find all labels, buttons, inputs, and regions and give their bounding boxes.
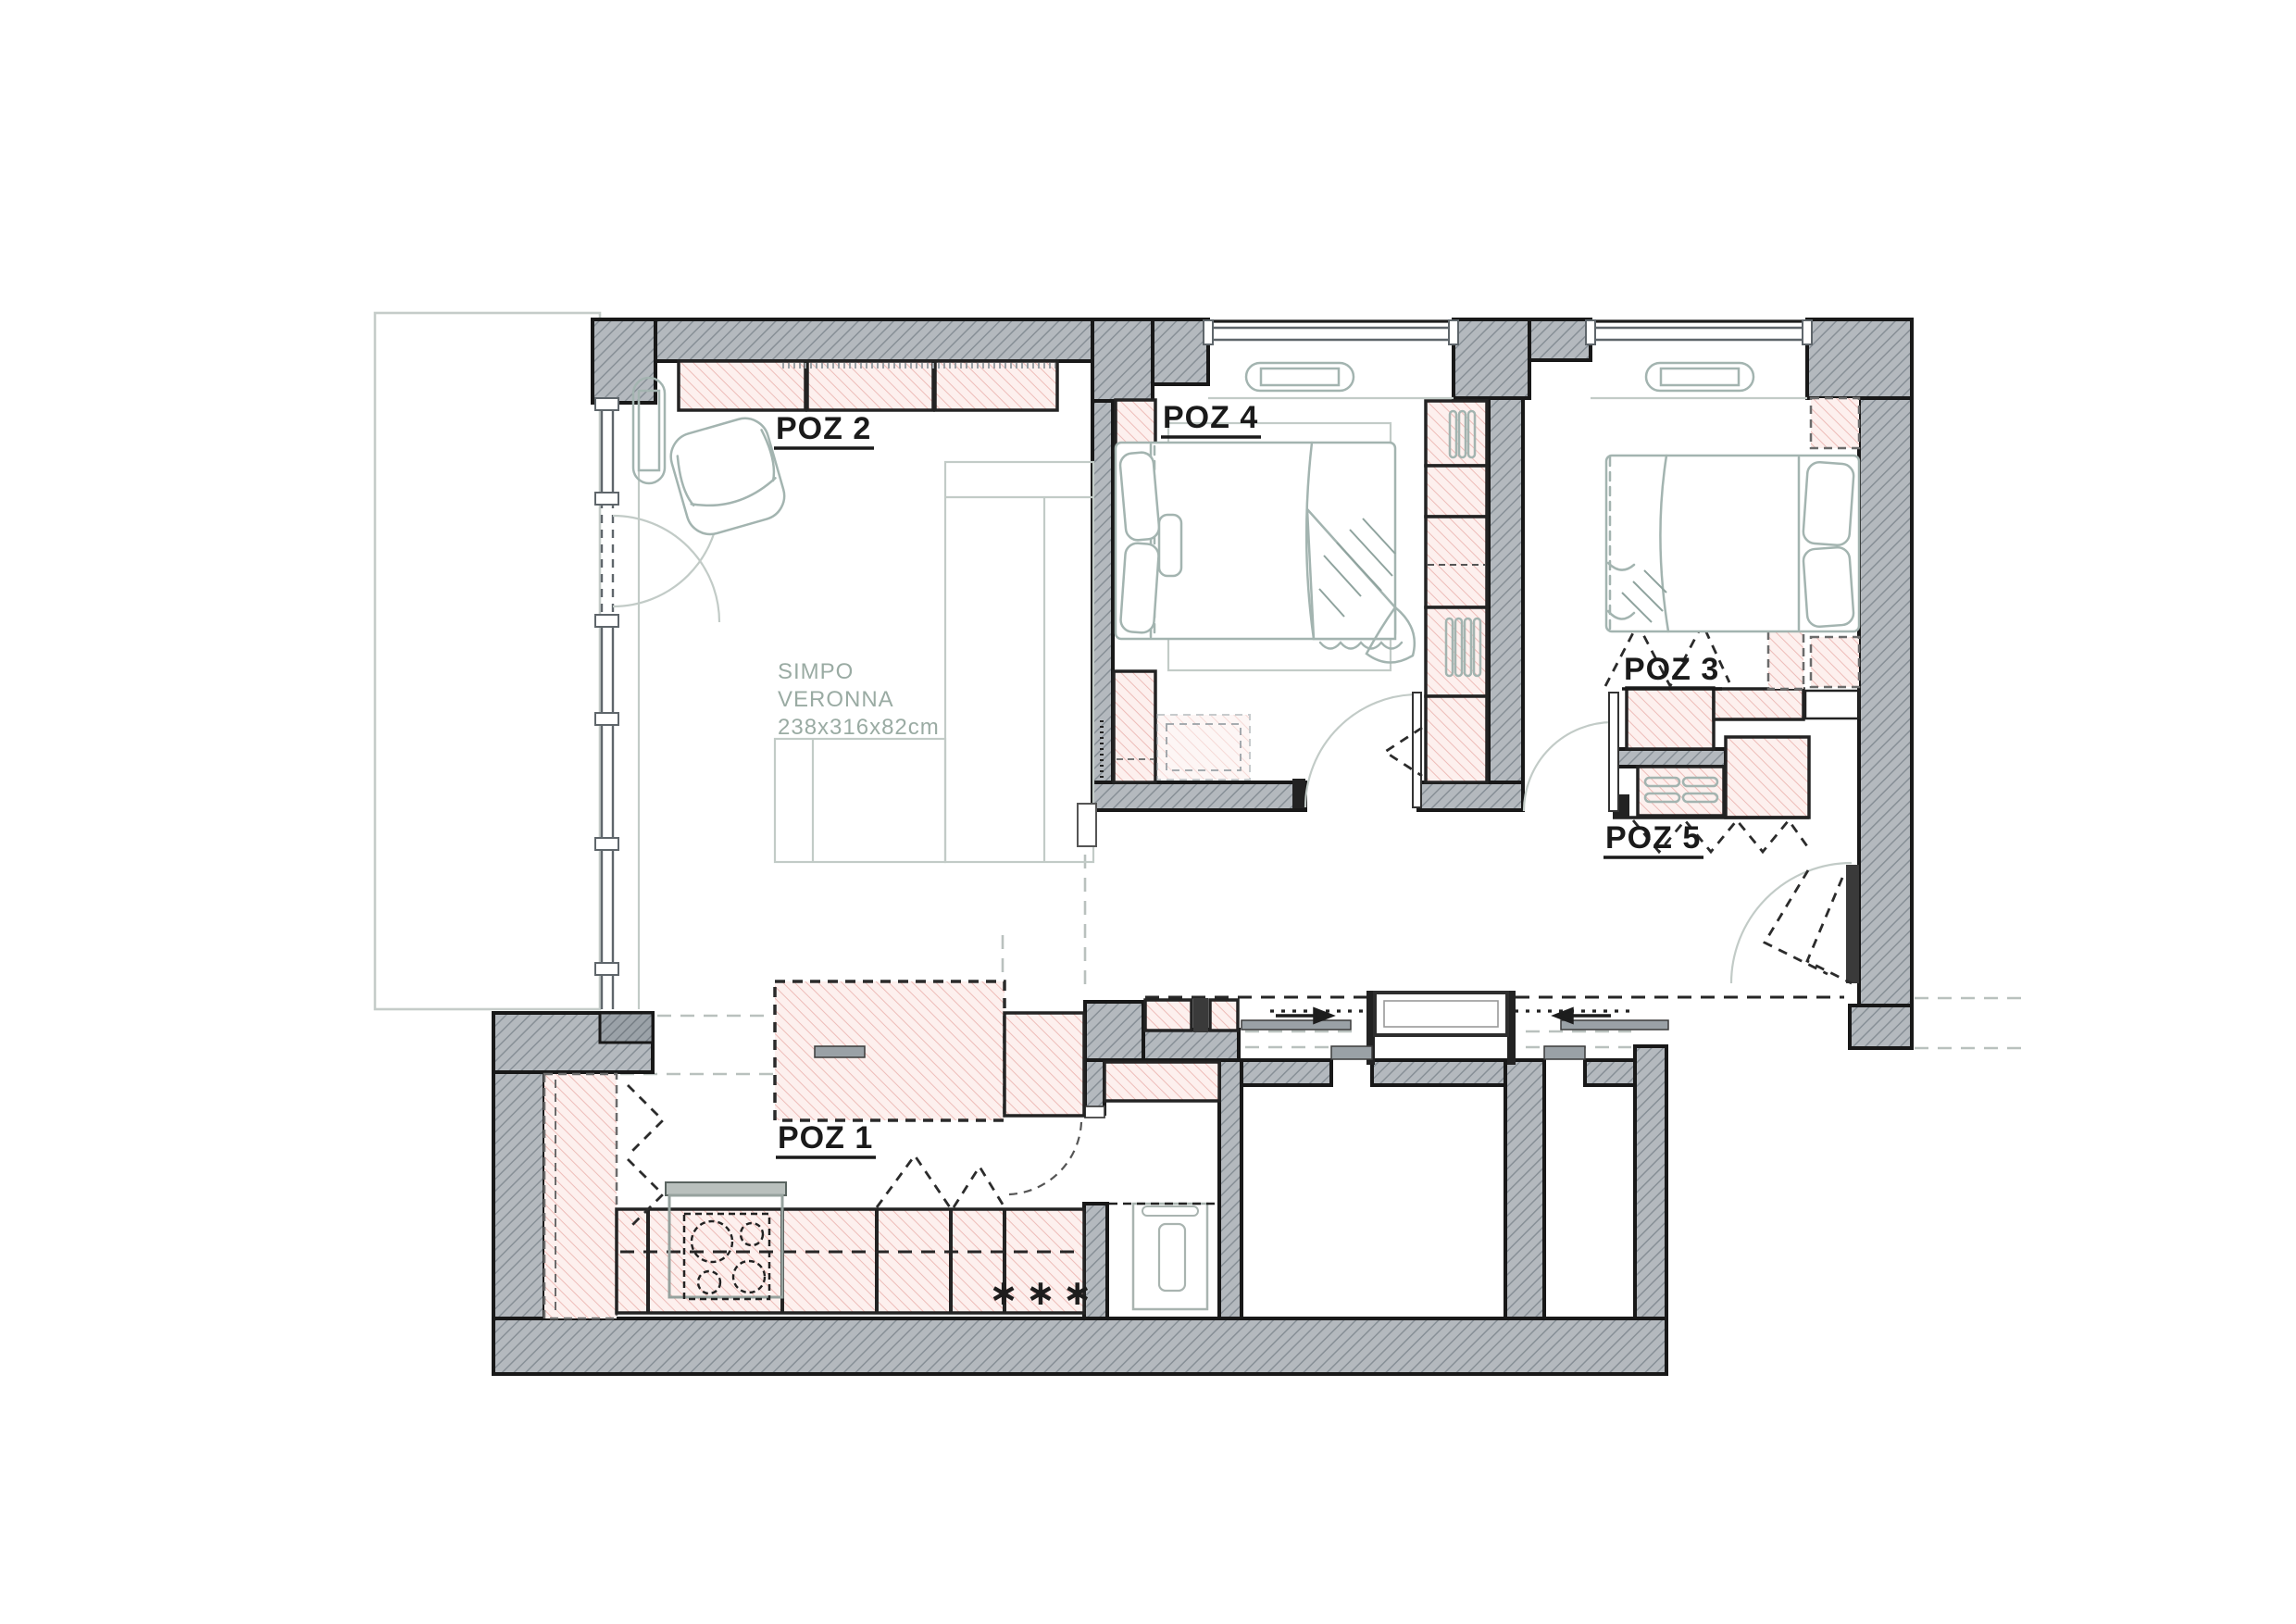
radiator-bedroom2 (1646, 363, 1753, 391)
wall-bedroom2-bottom (1613, 749, 1726, 767)
wall-kitchen-stub-dark (600, 1013, 653, 1043)
bedroom1-bench (1157, 715, 1250, 780)
wall-between-bedrooms (1489, 398, 1523, 782)
wall-bath-left (1219, 1060, 1242, 1318)
wall-bedroom1-corner (1092, 319, 1153, 401)
pillow (1159, 515, 1181, 576)
kitchen-island-poz1 (775, 981, 1004, 1120)
pillow (1803, 461, 1854, 545)
dishwasher-marker: ∗∗∗ (989, 1272, 1100, 1313)
wall-right (1859, 398, 1912, 1006)
window-bedroom1 (1204, 320, 1458, 398)
wall-top-right-corner (1807, 319, 1912, 398)
pocket-door-assembly (1242, 991, 1668, 1065)
counter-bifold-dashes (877, 1156, 1004, 1207)
sliding-door-panel (1375, 993, 1507, 1035)
note-line-3: 238x316x82cm (778, 715, 940, 740)
note-line-1: SIMPO (778, 659, 854, 684)
sliding-rail-left (1242, 1020, 1351, 1030)
kitchen-door-arc (1009, 1122, 1081, 1194)
niche-opening-sill (1805, 691, 1859, 718)
label-poz2: POZ 2 (776, 411, 871, 446)
wall-top-living (593, 319, 1143, 361)
wall-toilet-right (1635, 1046, 1666, 1318)
pocket-panel-right (1544, 1046, 1585, 1059)
pillow (1803, 546, 1854, 627)
radiator-bedroom1 (1246, 363, 1354, 391)
wall-living-bedroom1 (1092, 401, 1113, 782)
shelf-column-bedroom1 (1426, 401, 1487, 782)
wall-hall-junction-b (1143, 1030, 1239, 1060)
nightstand-top (1811, 398, 1859, 448)
alcove-cabinet (1104, 1062, 1219, 1101)
kitchen-corner-unit (1004, 1013, 1084, 1116)
product-note: SIMPO VERONNA 238x316x82cm (778, 659, 940, 740)
bed-bedroom2 (1606, 456, 1859, 631)
bedroom2-door (1524, 693, 1618, 811)
hall-cabinet-a (1145, 1000, 1192, 1031)
wall-hall-junction-a (1085, 1002, 1143, 1060)
label-poz3: POZ 3 (1624, 652, 1719, 687)
hall-cabinet-post (1193, 998, 1208, 1032)
note-line-2: VERONNA (778, 687, 894, 712)
wall-bottom (493, 1318, 1666, 1374)
bed-bedroom1 (1116, 423, 1415, 670)
pocket-panel-left (1331, 1046, 1372, 1059)
terrace-outline (375, 313, 600, 1009)
alcove-threshold (1085, 1106, 1104, 1118)
wall-between-windows-a (1454, 319, 1529, 398)
armchair (666, 413, 791, 540)
label-poz1: POZ 1 (778, 1120, 873, 1156)
kitchen-pantry (544, 1074, 617, 1318)
cabinet-row-poz2 (679, 361, 1057, 410)
floorplan-page: ∗∗∗ (0, 0, 2296, 1624)
hall-cabinet-b (1210, 1000, 1238, 1031)
label-poz4: POZ 4 (1163, 400, 1258, 435)
washing-machine (1109, 1204, 1218, 1309)
pillow (1120, 543, 1160, 633)
label-poz5: POZ 5 (1605, 820, 1701, 856)
pillow (1119, 452, 1160, 542)
wall-toilet-top (1585, 1060, 1635, 1085)
wall-bedroom1-bottom-left (1092, 782, 1305, 810)
wall-right-step (1850, 1006, 1912, 1048)
wall-bath-divider (1505, 1060, 1544, 1318)
wall-bedroom1-bottom-right (1418, 782, 1523, 810)
window-bedroom2 (1586, 320, 1812, 398)
entrance-door (1731, 863, 1859, 983)
wall-end-cap (1078, 804, 1096, 846)
island-sink-icon (815, 1046, 865, 1057)
wardrobe-poz4-lower (1114, 671, 1155, 782)
wall-bath-top-b (1372, 1060, 1505, 1085)
floorplan-canvas: ∗∗∗ (0, 0, 2296, 1624)
nightstand-bottom (1811, 637, 1859, 687)
wall-bath-top-a (1242, 1060, 1331, 1085)
wall-between-windows-b (1529, 319, 1591, 360)
bedroom1-door (1292, 693, 1422, 808)
sliding-rail-right (1561, 1020, 1668, 1030)
